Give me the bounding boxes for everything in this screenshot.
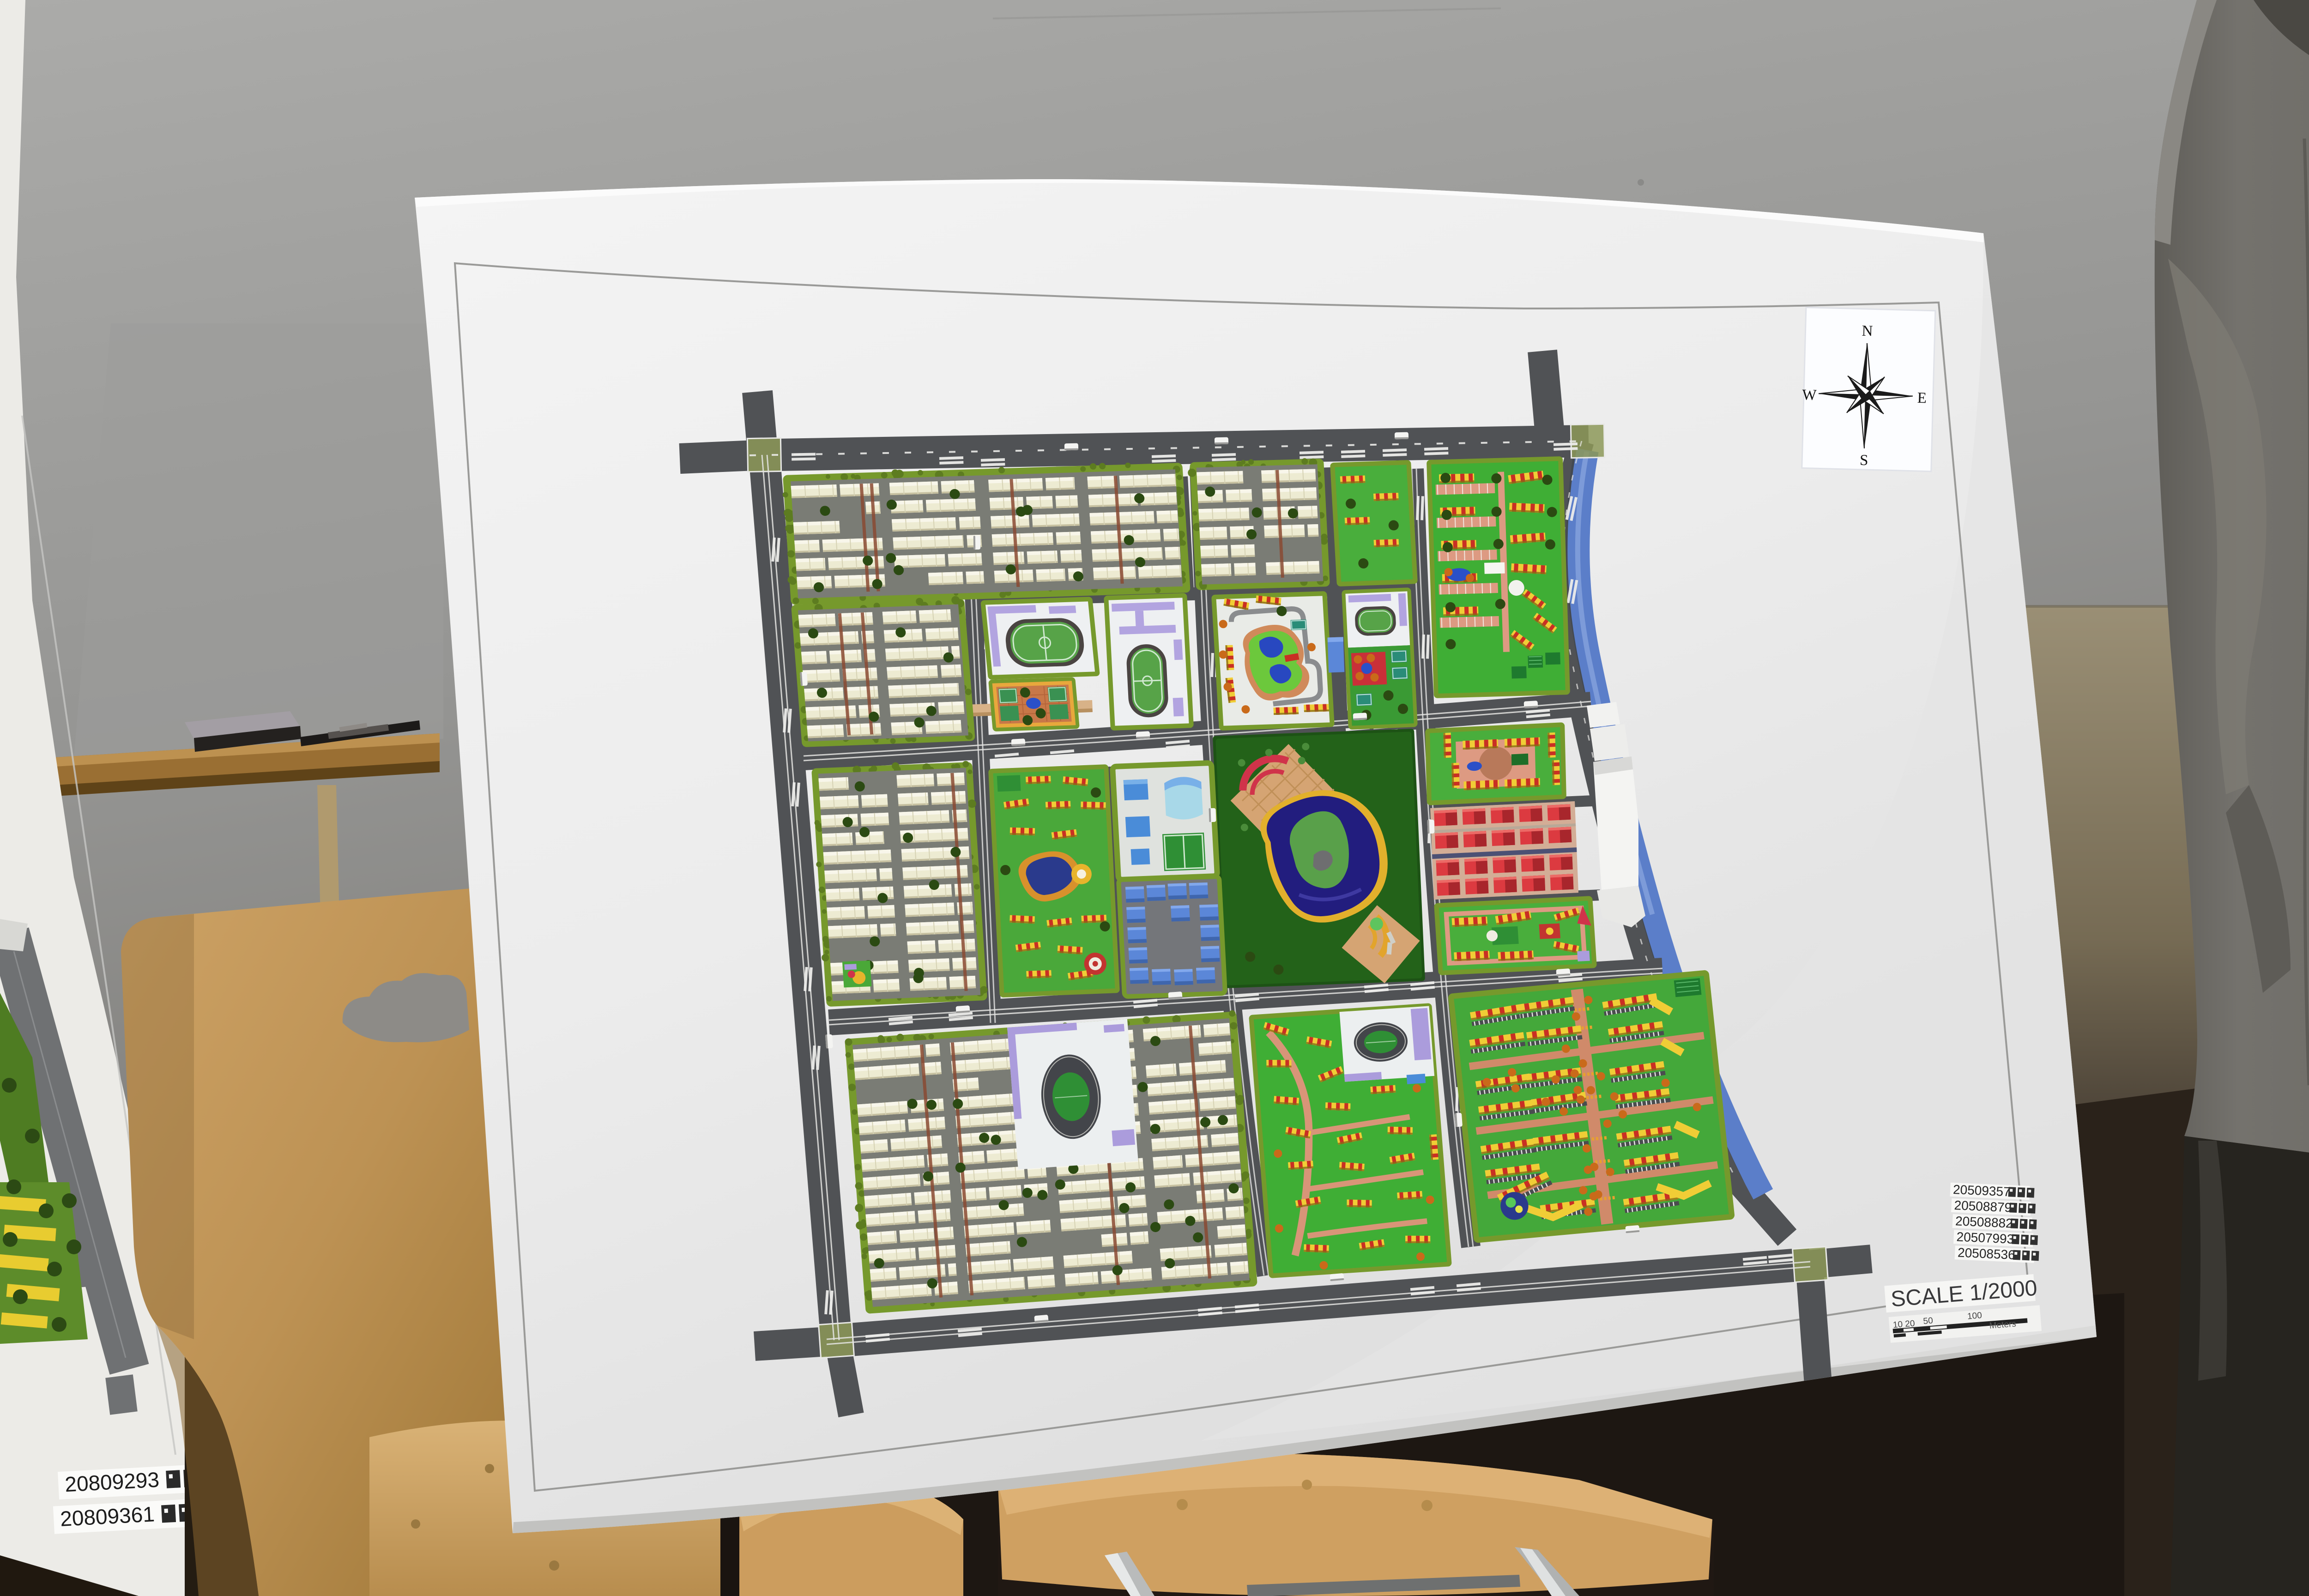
svg-text:20508536: 20508536 (1958, 1245, 2016, 1262)
svg-text:20809361: 20809361 (60, 1502, 155, 1531)
svg-text:20508879: 20508879 (1954, 1198, 2012, 1215)
svg-text:50: 50 (1923, 1316, 1934, 1326)
svg-text:20507993: 20507993 (1956, 1229, 2014, 1246)
svg-text:20509357: 20509357 (1952, 1182, 2011, 1199)
svg-text:N: N (1862, 323, 1873, 340)
svg-text:E: E (1917, 390, 1927, 407)
svg-text:W: W (1802, 387, 1817, 404)
svg-text:100: 100 (1967, 1311, 1982, 1321)
svg-text:20809293: 20809293 (64, 1468, 160, 1497)
svg-text:S: S (1860, 452, 1868, 469)
svg-text:20508882: 20508882 (1955, 1214, 2013, 1230)
